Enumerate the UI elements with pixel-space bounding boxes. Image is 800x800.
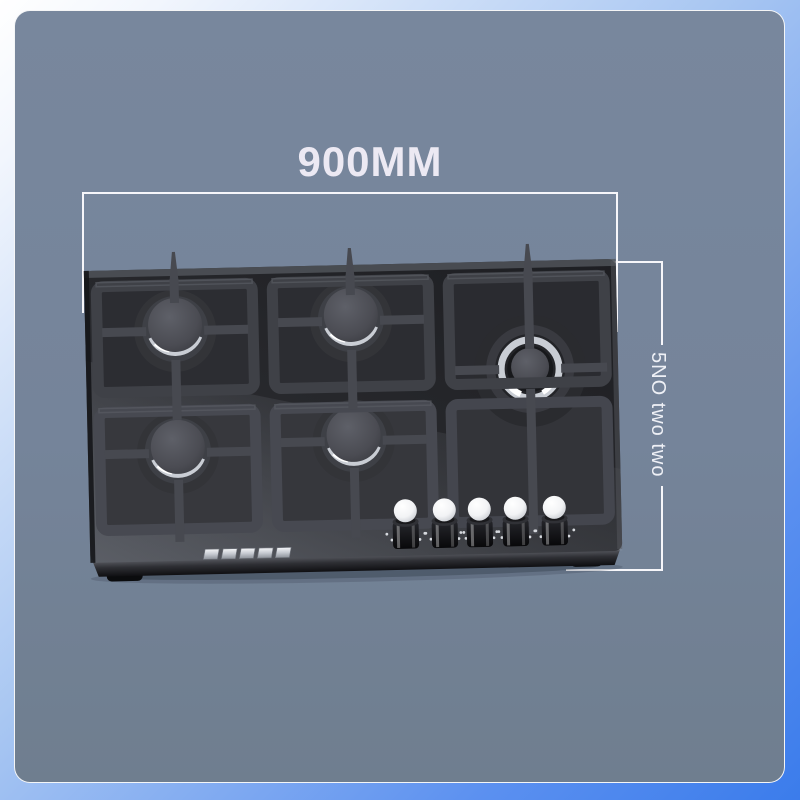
logo-glyph	[203, 549, 219, 559]
width-dimension-label: 900MM	[250, 138, 490, 186]
logo-glyph	[221, 549, 237, 559]
depth-dimension-label: 5NO two two	[646, 337, 669, 493]
logo-glyph	[257, 548, 273, 558]
gas-hob-image	[71, 229, 629, 589]
control-knobs	[385, 495, 576, 549]
width-dimension-line	[82, 192, 618, 194]
depth-dimension-line-lower	[661, 486, 663, 570]
depth-dimension-line-upper	[661, 261, 663, 345]
logo-glyph	[275, 547, 291, 557]
brand-logo	[203, 547, 291, 559]
logo-glyph	[239, 548, 255, 558]
product-photo-page: { "annotations": { "width_label": "900MM…	[0, 0, 800, 800]
